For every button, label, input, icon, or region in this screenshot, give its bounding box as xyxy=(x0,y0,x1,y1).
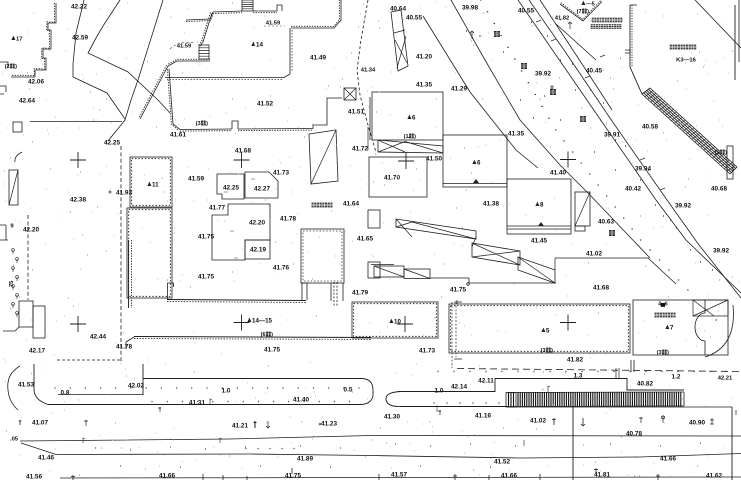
svg-text:(3: (3 xyxy=(196,121,201,127)
svg-text:41.75: 41.75 xyxy=(285,472,301,479)
svg-text:41.52: 41.52 xyxy=(494,458,510,465)
svg-text:41.68: 41.68 xyxy=(235,147,251,154)
svg-text:40.63: 40.63 xyxy=(598,218,614,225)
svg-text:41.35: 41.35 xyxy=(508,130,524,137)
svg-text:(3: (3 xyxy=(541,348,546,354)
svg-text:17: 17 xyxy=(16,36,22,42)
svg-text:): ) xyxy=(206,121,208,127)
svg-text:41.68: 41.68 xyxy=(593,284,609,291)
svg-text:8: 8 xyxy=(540,201,544,208)
svg-text:41.70: 41.70 xyxy=(384,174,400,181)
svg-text:42.64: 42.64 xyxy=(19,97,35,104)
svg-text:40.58: 40.58 xyxy=(642,123,658,130)
svg-text:1.2: 1.2 xyxy=(672,373,681,380)
svg-text:41.34: 41.34 xyxy=(361,67,376,73)
svg-text:41.66: 41.66 xyxy=(501,472,517,479)
svg-text:.05: .05 xyxy=(10,436,19,442)
svg-text:42.19: 42.19 xyxy=(250,246,266,253)
svg-text:41.72: 41.72 xyxy=(352,145,368,152)
svg-text:1.0: 1.0 xyxy=(222,387,231,394)
svg-text:41.78: 41.78 xyxy=(280,215,296,222)
svg-text:42.59: 42.59 xyxy=(72,34,88,41)
svg-text:): ) xyxy=(551,348,553,354)
svg-text:41.79: 41.79 xyxy=(352,289,368,296)
svg-text:41.46: 41.46 xyxy=(38,454,54,461)
svg-text:42.25: 42.25 xyxy=(104,139,120,146)
svg-text:41.89: 41.89 xyxy=(297,455,313,462)
svg-text:(6: (6 xyxy=(261,332,266,338)
svg-text:41.40: 41.40 xyxy=(550,169,566,176)
svg-text:41.07: 41.07 xyxy=(32,419,48,426)
svg-text:42.02: 42.02 xyxy=(128,382,144,389)
svg-text:42.20: 42.20 xyxy=(23,226,39,233)
svg-text:K3—16: K3—16 xyxy=(676,57,696,63)
svg-text:11: 11 xyxy=(152,181,159,188)
svg-text:): ) xyxy=(271,332,273,338)
svg-text:1.3: 1.3 xyxy=(574,372,583,379)
svg-text:): ) xyxy=(667,350,669,356)
svg-text:41.82: 41.82 xyxy=(555,15,570,21)
svg-text:5: 5 xyxy=(546,327,550,334)
svg-text:40.90: 40.90 xyxy=(689,419,705,426)
svg-text:40.55: 40.55 xyxy=(518,7,534,14)
svg-text:41.59: 41.59 xyxy=(188,175,204,182)
svg-text:41.52: 41.52 xyxy=(257,100,273,107)
svg-text:41.75: 41.75 xyxy=(450,286,466,293)
svg-text:42.17: 42.17 xyxy=(29,347,45,354)
svg-text:40.68: 40.68 xyxy=(711,185,727,192)
svg-text:14: 14 xyxy=(256,41,263,48)
svg-text:41.66: 41.66 xyxy=(660,455,676,462)
svg-text:1.0: 1.0 xyxy=(435,387,444,394)
svg-text:): ) xyxy=(414,134,416,140)
svg-text:41.20: 41.20 xyxy=(416,53,432,60)
svg-text:42.27: 42.27 xyxy=(254,185,270,192)
svg-text:41.56: 41.56 xyxy=(26,473,42,480)
svg-text:41.49: 41.49 xyxy=(310,54,326,61)
svg-text:0.5: 0.5 xyxy=(344,386,353,393)
svg-text:41.81: 41.81 xyxy=(594,471,610,478)
svg-text:42.22: 42.22 xyxy=(71,3,87,10)
svg-text:0: 0 xyxy=(550,85,553,91)
svg-text:(1: (1 xyxy=(404,134,409,140)
svg-text:75: 75 xyxy=(9,281,15,287)
svg-text:40.45: 40.45 xyxy=(586,67,602,74)
svg-text:41.51: 41.51 xyxy=(348,108,364,115)
svg-text:42.14: 42.14 xyxy=(451,383,467,390)
svg-text:41.93: 41.93 xyxy=(116,189,132,196)
svg-text:4▅6: 4▅6 xyxy=(658,301,668,307)
svg-text:41.64: 41.64 xyxy=(343,200,359,207)
svg-text:7: 7 xyxy=(670,324,674,331)
svg-text:41.02: 41.02 xyxy=(530,417,546,424)
svg-text:(3: (3 xyxy=(657,350,662,356)
svg-text:14—15: 14—15 xyxy=(252,317,273,324)
svg-text:41.73: 41.73 xyxy=(273,169,289,176)
svg-text:40.64: 40.64 xyxy=(390,5,406,12)
svg-text:42.25: 42.25 xyxy=(223,184,239,191)
svg-text:40.82: 40.82 xyxy=(637,380,653,387)
svg-text:39.98: 39.98 xyxy=(462,4,478,11)
svg-text:41.23: 41.23 xyxy=(321,420,337,427)
svg-text:41.50: 41.50 xyxy=(426,155,442,162)
svg-text:): ) xyxy=(725,150,727,156)
svg-text:41.62: 41.62 xyxy=(706,472,722,479)
svg-text:41.75: 41.75 xyxy=(198,273,214,280)
svg-text:41.59: 41.59 xyxy=(266,20,281,26)
svg-text:39.92: 39.92 xyxy=(535,70,551,77)
svg-text:41.75: 41.75 xyxy=(264,346,280,353)
svg-text:41.53: 41.53 xyxy=(18,381,34,388)
svg-text:41.57: 41.57 xyxy=(391,471,407,478)
svg-text:(5: (5 xyxy=(715,150,720,156)
svg-text:6: 6 xyxy=(412,114,416,121)
svg-text:40.55: 40.55 xyxy=(406,14,422,21)
svg-text:42.44: 42.44 xyxy=(90,333,106,340)
svg-text:6: 6 xyxy=(477,159,481,166)
svg-text:40.42: 40.42 xyxy=(625,185,641,192)
svg-text:39.92: 39.92 xyxy=(675,202,691,209)
svg-text:41.30: 41.30 xyxy=(384,413,400,420)
svg-text:41.82: 41.82 xyxy=(567,356,583,363)
svg-text:41.31: 41.31 xyxy=(189,399,205,406)
svg-text:41.66: 41.66 xyxy=(159,472,175,479)
svg-text:41.59: 41.59 xyxy=(177,43,192,49)
svg-text:0.8: 0.8 xyxy=(61,389,70,396)
svg-text:41.75: 41.75 xyxy=(198,233,214,240)
svg-text:41.76: 41.76 xyxy=(273,264,289,271)
svg-text:41.77: 41.77 xyxy=(209,204,225,211)
svg-text:41.40: 41.40 xyxy=(293,396,309,403)
svg-text:41.29: 41.29 xyxy=(451,85,467,92)
svg-text:41.16: 41.16 xyxy=(475,412,491,419)
svg-text:42.20: 42.20 xyxy=(249,219,265,226)
svg-text:39.94: 39.94 xyxy=(635,165,651,172)
svg-text:(2: (2 xyxy=(5,64,10,70)
svg-text:41.02: 41.02 xyxy=(586,250,602,257)
svg-text:42.38: 42.38 xyxy=(70,196,86,203)
svg-text:41.61: 41.61 xyxy=(170,131,186,138)
svg-text:41.65: 41.65 xyxy=(357,235,373,242)
svg-text:—5: —5 xyxy=(586,1,595,7)
svg-text:42.06: 42.06 xyxy=(28,78,44,85)
svg-text:(7: (7 xyxy=(577,9,582,15)
svg-text:): ) xyxy=(587,9,589,15)
svg-text:41.38: 41.38 xyxy=(483,200,499,207)
svg-text:39.92: 39.92 xyxy=(713,247,729,254)
svg-text:41.73: 41.73 xyxy=(419,347,435,354)
svg-text:42.21: 42.21 xyxy=(718,375,733,381)
svg-text:41.35: 41.35 xyxy=(416,81,432,88)
svg-text:41.45: 41.45 xyxy=(531,237,547,244)
svg-text:41.21: 41.21 xyxy=(232,422,248,429)
svg-text:41.78: 41.78 xyxy=(116,343,132,350)
svg-text:39.91: 39.91 xyxy=(604,131,620,138)
svg-text:42.11: 42.11 xyxy=(478,377,494,384)
svg-text:): ) xyxy=(15,64,17,70)
